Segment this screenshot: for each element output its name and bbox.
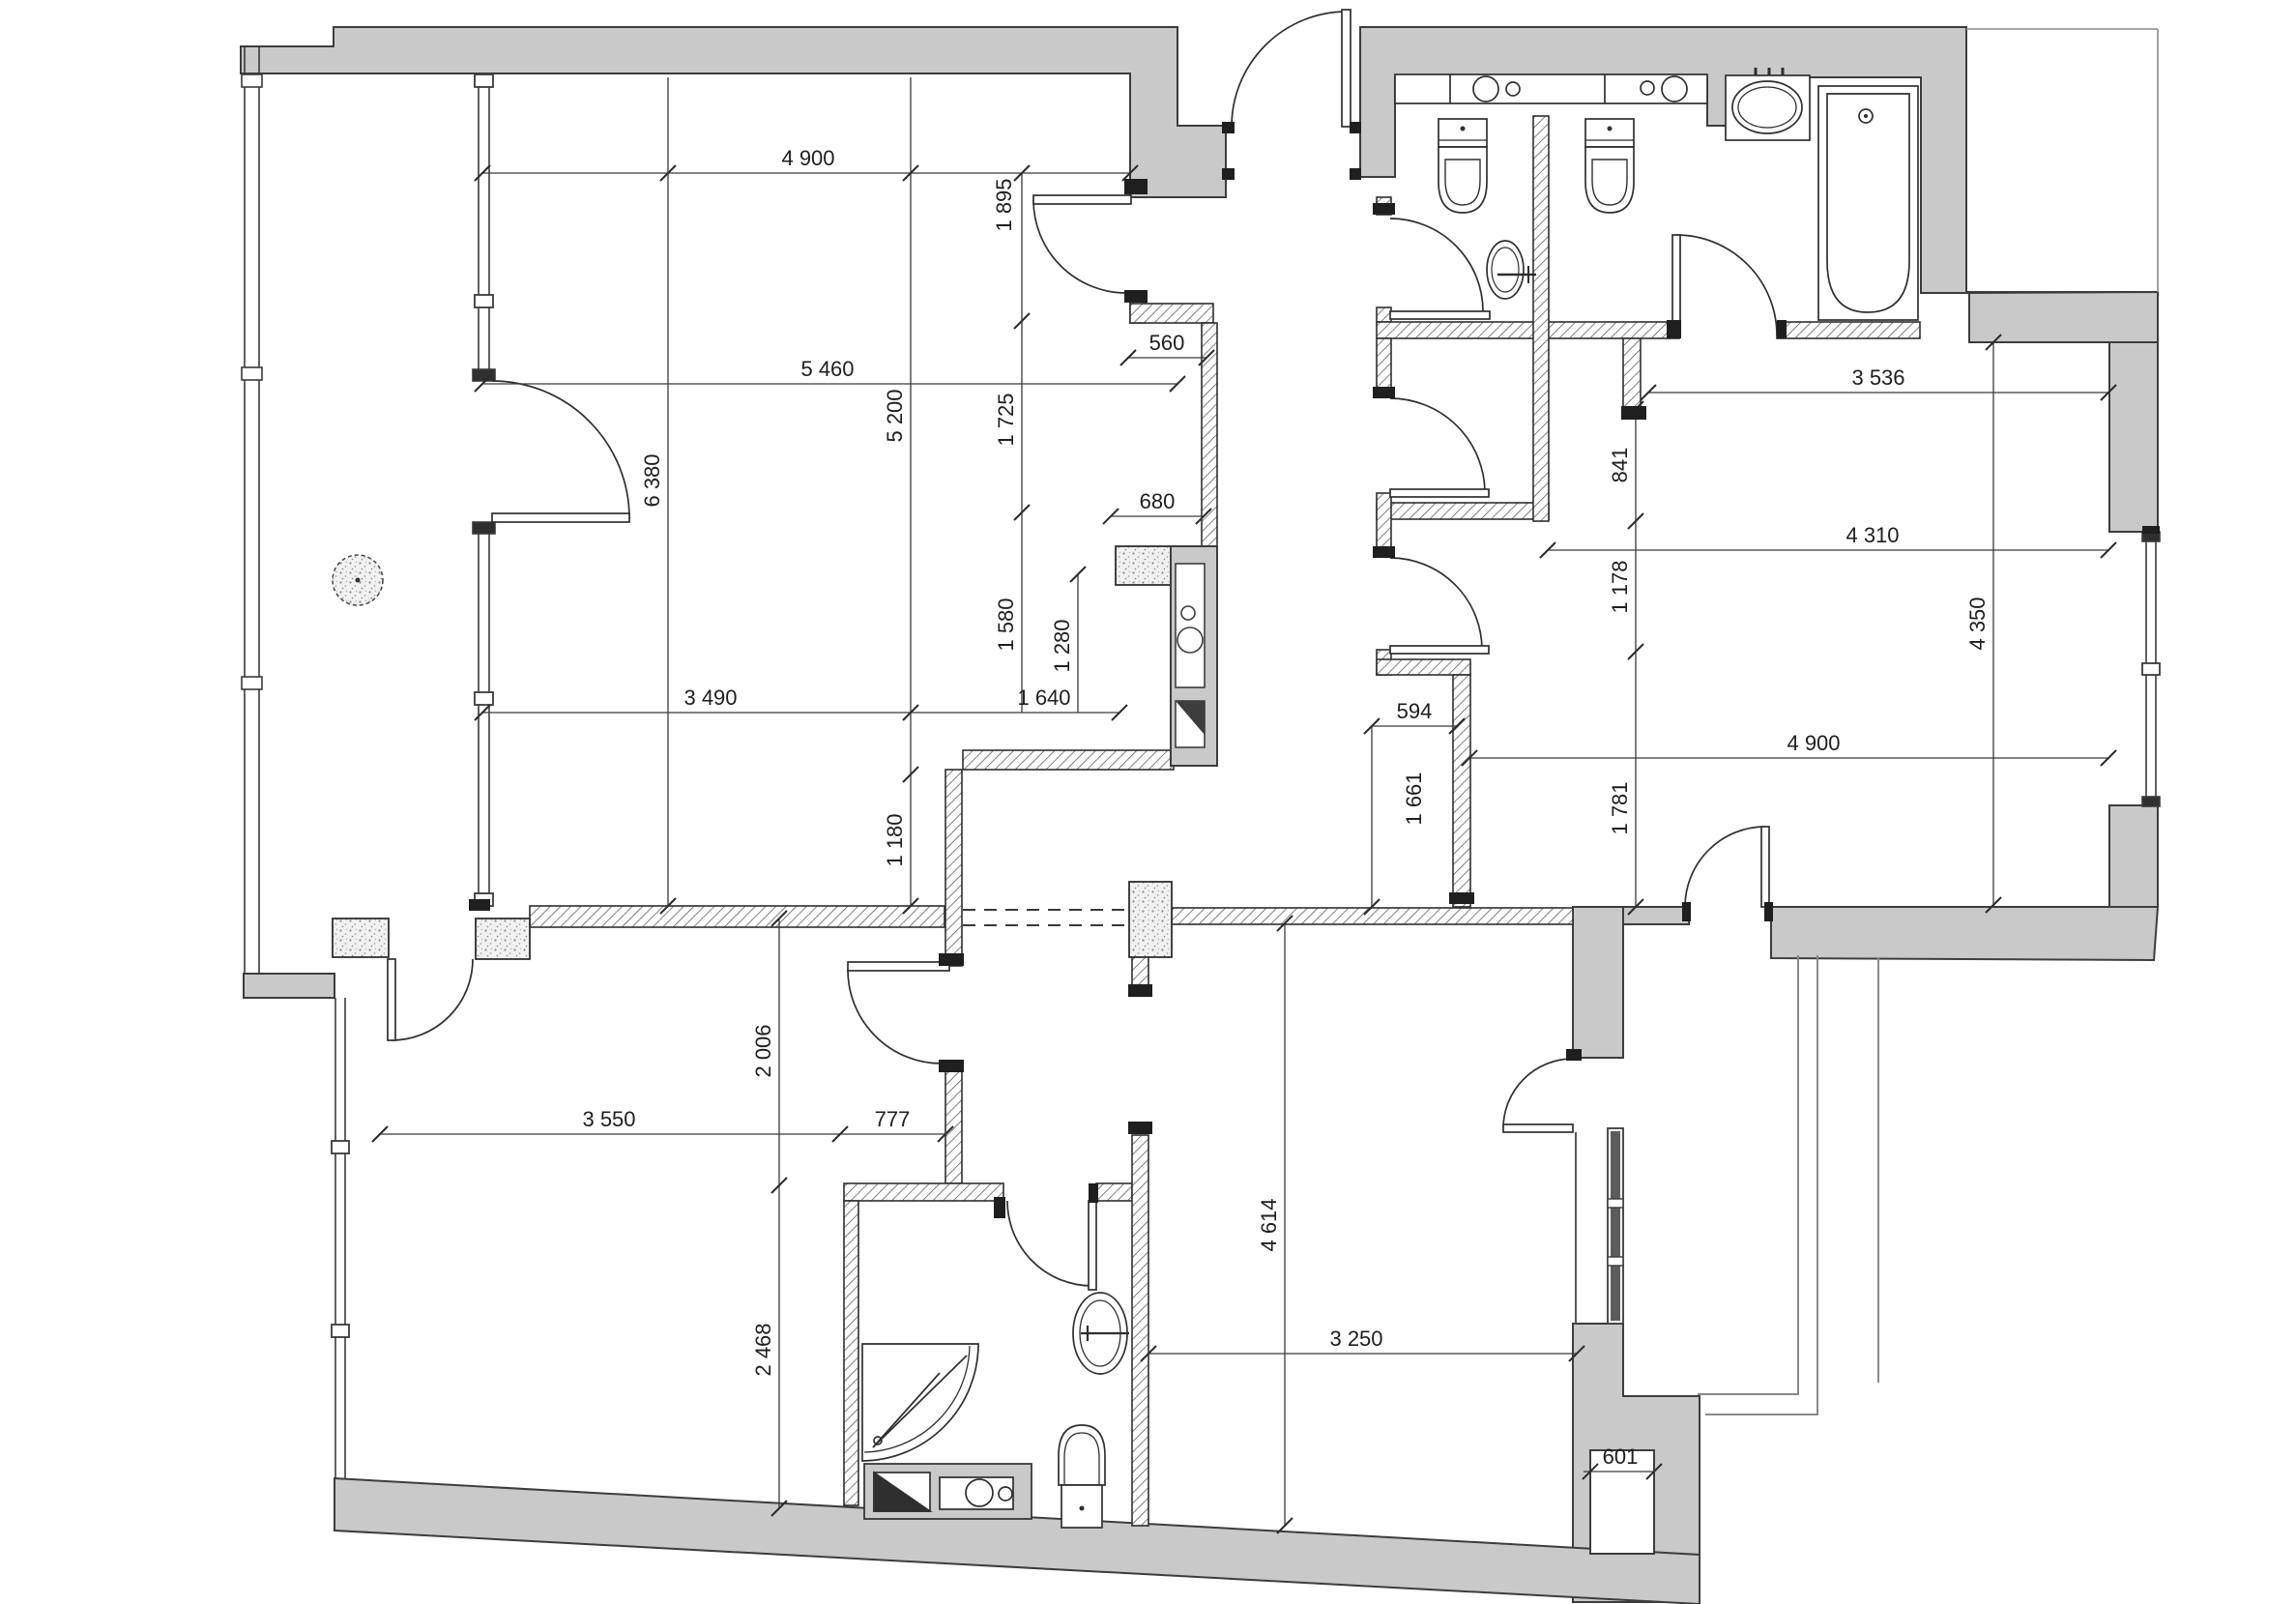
svg-text:6 380: 6 380	[640, 453, 664, 507]
svg-text:2 006: 2 006	[751, 1024, 775, 1077]
svg-text:594: 594	[1397, 699, 1433, 723]
svg-text:1 280: 1 280	[1050, 619, 1074, 672]
svg-text:5 460: 5 460	[800, 357, 854, 381]
svg-text:777: 777	[875, 1107, 911, 1131]
svg-text:560: 560	[1149, 331, 1185, 355]
svg-text:1 580: 1 580	[994, 598, 1018, 651]
svg-text:1 640: 1 640	[1017, 685, 1070, 710]
svg-text:3 490: 3 490	[683, 685, 737, 710]
svg-text:4 350: 4 350	[1965, 597, 1990, 650]
svg-text:841: 841	[1608, 448, 1632, 483]
svg-text:1 661: 1 661	[1402, 772, 1426, 825]
svg-text:1 180: 1 180	[883, 813, 907, 866]
svg-text:601: 601	[1603, 1444, 1639, 1469]
svg-text:5 200: 5 200	[883, 389, 907, 442]
svg-text:1 725: 1 725	[994, 393, 1018, 446]
svg-text:1 781: 1 781	[1608, 781, 1632, 834]
svg-text:3 550: 3 550	[582, 1107, 635, 1131]
svg-text:3 536: 3 536	[1851, 365, 1904, 390]
svg-text:4 900: 4 900	[781, 146, 834, 170]
svg-text:1 895: 1 895	[992, 178, 1016, 231]
svg-text:4 614: 4 614	[1257, 1198, 1281, 1251]
svg-text:4 900: 4 900	[1787, 731, 1840, 755]
svg-text:4 310: 4 310	[1846, 523, 1899, 547]
svg-text:3 250: 3 250	[1329, 1327, 1382, 1351]
svg-text:1 178: 1 178	[1608, 560, 1632, 613]
svg-text:680: 680	[1140, 489, 1176, 513]
svg-text:2 468: 2 468	[751, 1323, 775, 1376]
